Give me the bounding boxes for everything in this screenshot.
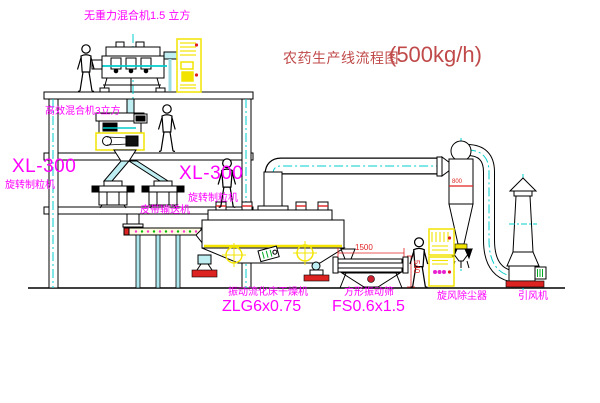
screen-model-label: FS0.6x1.5 <box>332 299 405 315</box>
granulator-mid-label: 旋转制粒机 <box>188 194 238 204</box>
worker-figure <box>159 105 176 152</box>
flow-diagram-canvas: 无重力混合机1.5 立方 农药生产线流程图 (500kg/h) 高效混合机3立方… <box>0 0 600 403</box>
diagram-capacity: (500kg/h) <box>389 44 482 66</box>
fan-label: 引风机 <box>518 292 548 302</box>
control-cabinet-top <box>177 39 201 92</box>
screen-height-dimension: 540 <box>412 260 420 273</box>
gravity-free-mixer-drawing <box>92 42 177 92</box>
gravity-mixer-label: 无重力混合机1.5 立方 <box>84 11 190 22</box>
dryer-model-label: ZLG6x0.75 <box>222 299 301 315</box>
screen-name-label: 方形振动筛 <box>344 288 394 298</box>
cyclone-dimension-mark: 800 <box>452 179 462 185</box>
xl300-mid-label: XL-300 <box>179 164 243 183</box>
control-cabinets-bottom <box>429 229 454 286</box>
induced-draft-fan-drawing <box>506 266 546 287</box>
belt-conveyor-label: 皮带输送机 <box>140 206 190 216</box>
screen-length-dimension: 1500 <box>355 244 373 252</box>
cyclone-label: 旋风除尘器 <box>437 292 487 302</box>
dryer-exhaust-duct <box>258 157 450 210</box>
vibrating-screen-drawing <box>333 248 415 288</box>
high-mixer-label: 高效混合机3立方 <box>45 107 121 117</box>
exhaust-stack-drawing <box>507 178 539 266</box>
granulator-left-label: 旋转制粒机 <box>5 181 55 191</box>
y-discharge-pipe <box>104 161 168 181</box>
xl300-left-label: XL-300 <box>12 157 76 176</box>
dryer-name-label: 振动流化床干燥机 <box>228 288 308 298</box>
granulators-drawing <box>92 181 184 208</box>
fluid-bed-dryer-drawing <box>192 202 344 281</box>
diagram-title: 农药生产线流程图 <box>283 51 399 65</box>
